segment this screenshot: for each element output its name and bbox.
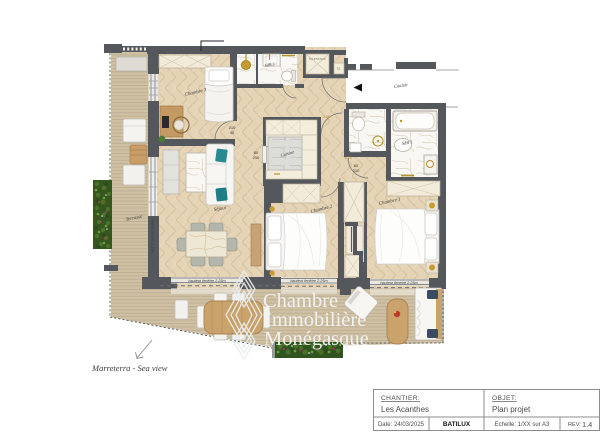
svg-text:Echelle: 1/XX sur A3: Echelle: 1/XX sur A3	[495, 422, 550, 428]
svg-text:Monégasque: Monégasque	[264, 328, 369, 350]
svg-text:hauteur fenêtre 2.25m: hauteur fenêtre 2.25m	[380, 281, 417, 285]
svg-text:hauteur fenêtre 2.25m: hauteur fenêtre 2.25m	[188, 279, 225, 283]
svg-text:Marreterra - Sea view: Marreterra - Sea view	[91, 363, 168, 373]
svg-text:hauteur fenêtre 2.25m: hauteur fenêtre 2.25m	[151, 218, 155, 253]
svg-text:Date: 24/03/2025: Date: 24/03/2025	[378, 422, 425, 428]
svg-text:TE: TE	[337, 67, 341, 71]
svg-text:fourreaux: fourreaux	[309, 56, 326, 61]
svg-text:210: 210	[253, 155, 260, 160]
svg-text:CHANTIER:: CHANTIER:	[381, 395, 420, 402]
svg-text:0.15: 0.15	[345, 156, 352, 160]
svg-text:40: 40	[230, 130, 235, 135]
svg-text:2.08: 2.08	[323, 115, 330, 119]
svg-text:Les Acanthes: Les Acanthes	[381, 405, 429, 414]
svg-text:Plan projet: Plan projet	[492, 405, 531, 414]
svg-text:hauteur fenêtre 2.25m: hauteur fenêtre 2.25m	[290, 279, 327, 283]
svg-text:1.4: 1.4	[582, 420, 592, 429]
svg-text:REV:: REV:	[568, 422, 581, 428]
svg-text:210: 210	[353, 168, 360, 173]
svg-text:OBJET:: OBJET:	[492, 395, 517, 402]
svg-text:BATILUX: BATILUX	[443, 421, 471, 428]
